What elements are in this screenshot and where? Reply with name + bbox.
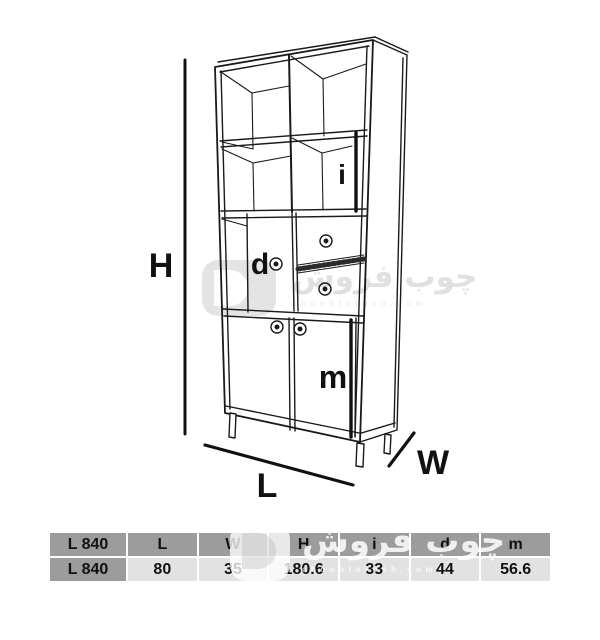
table-header-row: L 840 L W H i d m: [50, 533, 550, 556]
label-height: H: [149, 247, 174, 285]
header-module: m: [481, 533, 550, 556]
cell-length: 80: [128, 558, 197, 581]
header-model: L 840: [50, 533, 126, 556]
cell-door: 44: [411, 558, 480, 581]
cell-model: L 840: [50, 558, 126, 581]
label-width: W: [417, 444, 450, 482]
header-height: H: [269, 533, 338, 556]
page: H L W i d m چوب فروش choobforosh.com L 8…: [0, 0, 600, 640]
header-length: L: [128, 533, 197, 556]
label-length: L: [257, 467, 278, 505]
header-door: d: [411, 533, 480, 556]
cell-module: 56.6: [481, 558, 550, 581]
header-inner: i: [340, 533, 409, 556]
door-split: [289, 318, 290, 430]
cell-inner: 33: [340, 558, 409, 581]
cell-height: 180.6: [269, 558, 338, 581]
label-module: m: [319, 359, 347, 395]
dimension-line-l: [205, 445, 353, 485]
table-row: L 840 80 35 180.6 33 44 56.6: [50, 558, 550, 581]
label-inner-shelf: i: [338, 159, 346, 190]
cabinet-outline: [215, 37, 408, 467]
door-d-edge: [247, 214, 248, 312]
header-width: W: [199, 533, 268, 556]
dimension-line-w: [389, 433, 414, 466]
cell-width: 35: [199, 558, 268, 581]
dimension-table: L 840 L W H i d m L 840 80 35 180.6 33 4…: [48, 531, 552, 583]
label-door: d: [251, 248, 269, 281]
